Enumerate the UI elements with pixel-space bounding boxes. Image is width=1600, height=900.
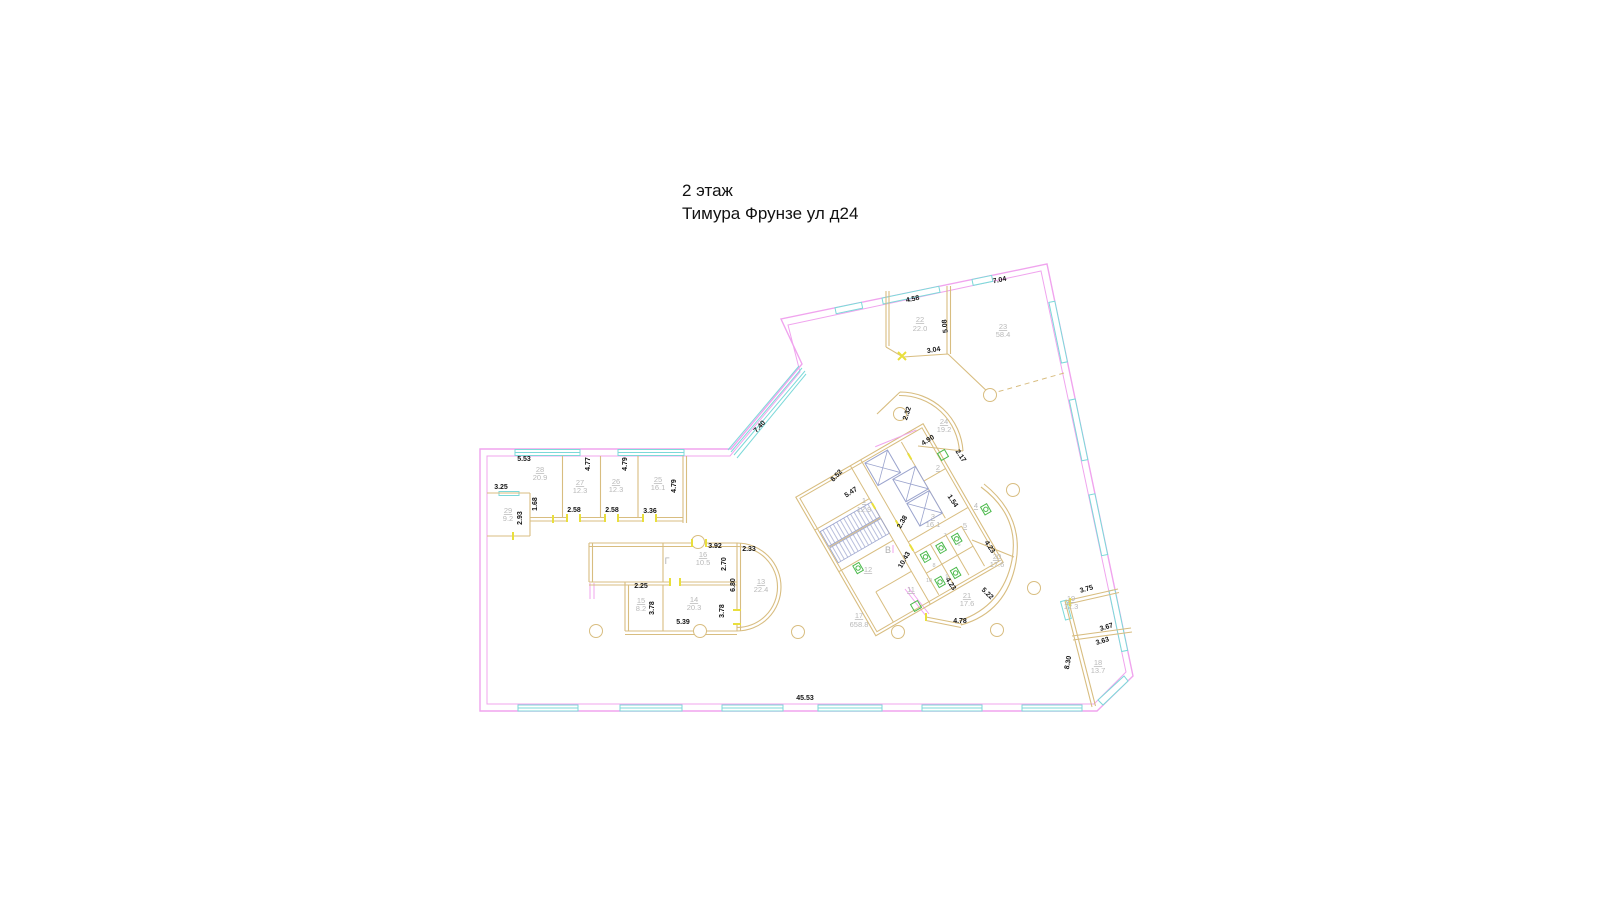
room-1-number: 1 — [862, 496, 866, 505]
floor-plan-page: 1 12.9 2 3 16.1 4 5 6 7 8 9 10 11 12 13 … — [0, 0, 1600, 900]
room-29-area: 9.2 — [503, 514, 513, 523]
room-13-area: 22.4 — [754, 585, 769, 594]
room-15-area: 8.2 — [636, 604, 646, 613]
dim: 5.47 — [844, 486, 859, 499]
floor-plan-canvas: 1 12.9 2 3 16.1 4 5 6 7 8 9 10 11 12 13 … — [0, 0, 1600, 900]
room-4-number: 4 — [974, 501, 978, 510]
dim: 3.75 — [1079, 584, 1094, 595]
dim: 2.58 — [605, 507, 619, 514]
room-11-number: 11 — [907, 585, 915, 594]
room-25-area: 16.1 — [651, 483, 666, 492]
room-7-number: 7 — [943, 533, 946, 539]
room-22-area: 22.0 — [913, 324, 928, 333]
dim: 2.17 — [954, 449, 967, 464]
room-24-area: 19.2 — [937, 425, 952, 434]
dim: 6.80 — [730, 578, 737, 592]
dim: 4.78 — [953, 618, 967, 625]
dim: 1.54 — [946, 494, 959, 509]
room-5-number: 5 — [963, 521, 967, 530]
dim: 4.90 — [921, 434, 936, 447]
interior-walls — [487, 286, 1132, 707]
dim: 3.04 — [926, 346, 941, 355]
dim: 3.78 — [719, 604, 726, 618]
window — [972, 275, 993, 285]
dim: 3.25 — [494, 484, 508, 491]
room-20-area: 17.6 — [990, 560, 1005, 569]
dim: 4.79 — [671, 479, 678, 493]
room-17-number: 17 — [855, 611, 863, 620]
dim: 4.79 — [622, 457, 629, 471]
room-1-area: 12.9 — [857, 505, 872, 514]
room-22-number: 22 — [916, 315, 924, 324]
dim: 5.39 — [676, 619, 690, 626]
dim: 45.53 — [796, 695, 814, 702]
drawing-title: 2 этаж Тимура Фрунзе ул д24 — [682, 181, 858, 223]
address-title: Тимура Фрунзе ул д24 — [682, 204, 858, 223]
room-10-number: 10 — [926, 578, 932, 584]
room-8-number: 8 — [932, 563, 935, 569]
dim: 4.58 — [905, 295, 920, 305]
room-16-area: 10.5 — [696, 558, 711, 567]
room-14-area: 20.3 — [687, 603, 702, 612]
room-19-area: 12.3 — [1064, 602, 1079, 611]
room-23-area: 58.4 — [996, 330, 1011, 339]
dim: 3.92 — [708, 543, 722, 550]
stair-g-label: Г — [665, 556, 670, 566]
dim: 8.30 — [1064, 655, 1073, 670]
room-3-area: 16.1 — [926, 520, 941, 529]
dim: 3.36 — [643, 508, 657, 515]
room-26-area: 12.3 — [609, 485, 624, 494]
dim: 3.78 — [649, 601, 656, 615]
dim: 2.33 — [742, 546, 756, 553]
room-18-area: 13.7 — [1091, 666, 1106, 675]
floor-title: 2 этаж — [682, 181, 734, 200]
dim: 3.63 — [1095, 636, 1110, 647]
room-21-area: 17.6 — [960, 599, 975, 608]
dim: 2.70 — [721, 557, 728, 571]
stair-v-label: В — [885, 545, 891, 555]
dim: 7.40 — [753, 420, 767, 435]
room-27-area: 12.3 — [573, 486, 588, 495]
dim: 7.04 — [992, 276, 1007, 286]
windows-layer — [499, 275, 1128, 711]
dim: 2.93 — [517, 511, 524, 525]
room-2-number: 2 — [936, 463, 940, 472]
dim: 2.58 — [567, 507, 581, 514]
dim: 5.53 — [517, 456, 531, 463]
room-28-area: 20.9 — [533, 473, 548, 482]
dim: 1.68 — [532, 497, 539, 511]
dim: 4.77 — [585, 457, 592, 471]
room-6-number: 6 — [957, 542, 960, 548]
dim: 2.38 — [896, 515, 909, 530]
dim: 10.43 — [897, 551, 912, 570]
dim: 5.22 — [980, 587, 995, 602]
room-12-number: 12 — [864, 565, 872, 574]
dim: 2.25 — [634, 583, 648, 590]
room-17-area: 658.8 — [850, 620, 869, 629]
dim: 5.08 — [941, 319, 949, 333]
